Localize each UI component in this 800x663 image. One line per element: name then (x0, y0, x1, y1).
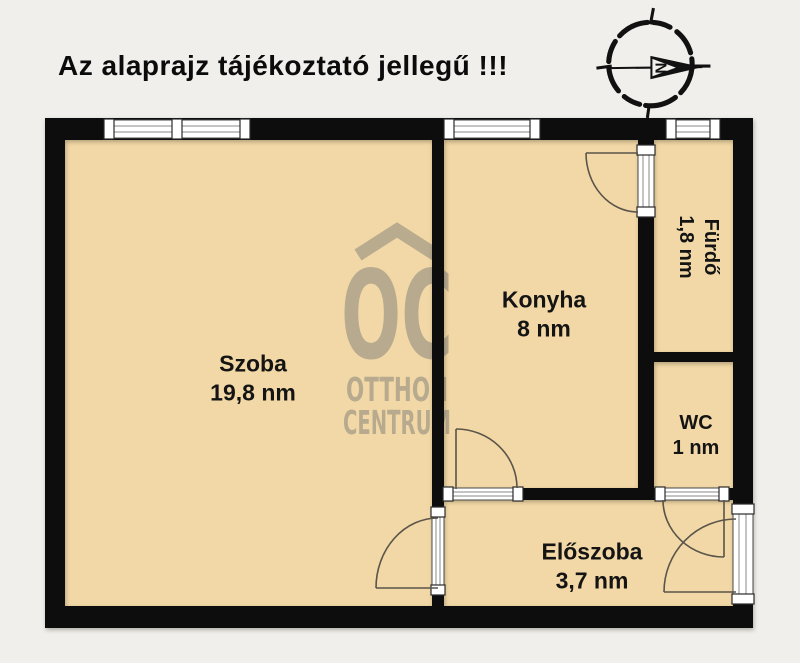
room-area: 1,8 nm (673, 215, 698, 278)
floorplan-page: Az alaprajz tájékoztató jellegű !!! N OC… (0, 0, 800, 663)
room-area: 19,8 nm (210, 378, 296, 407)
window-szoba (104, 119, 250, 139)
window-furdo (666, 119, 720, 139)
room-label-furdo: Fürdő 1,8 nm (673, 215, 723, 278)
room-label-konyha: Konyha 8 nm (502, 285, 586, 343)
floorplan-drawing: OC OTTHON CENTRUM (0, 0, 800, 663)
room-name: Szoba (210, 349, 296, 378)
room-label-eloszoba: Előszoba 3,7 nm (542, 537, 643, 595)
room-area: 1 nm (673, 436, 720, 461)
room-area: 3,7 nm (542, 566, 643, 595)
room-name: Előszoba (542, 537, 643, 566)
room-label-wc: WC 1 nm (673, 411, 720, 461)
room-name: Fürdő (698, 215, 723, 278)
wall-furdo-wc (654, 352, 734, 362)
room-name: Konyha (502, 285, 586, 314)
room-label-szoba: Szoba 19,8 nm (210, 349, 296, 407)
window-konyha (444, 119, 540, 139)
room-area: 8 nm (502, 314, 586, 343)
room-name: WC (673, 411, 720, 436)
